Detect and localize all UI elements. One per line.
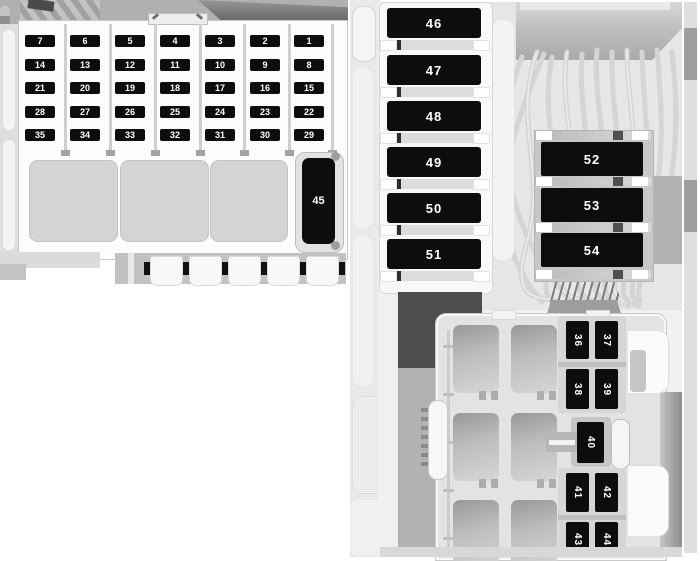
fuse-cell: 46: [387, 8, 481, 38]
clip-tab: [380, 87, 397, 98]
relay-pin: [537, 391, 544, 400]
fuse-number: 37: [601, 333, 612, 346]
fuse-cell: 31: [205, 129, 235, 141]
strip-slot: [353, 236, 373, 386]
rail-tab: [196, 150, 205, 156]
relay-pin: [549, 479, 556, 488]
fuse-cell: 27: [70, 106, 100, 118]
relay-slot: [210, 160, 288, 242]
fuse-cell: 52: [541, 142, 643, 176]
fuse-rail: [154, 24, 157, 152]
connector-pin: [421, 417, 428, 421]
rail-tab: [285, 150, 294, 156]
clip-tab: [473, 133, 490, 144]
clip-tab: [536, 131, 552, 140]
fuse-cell: 21: [25, 82, 55, 94]
fuse-cell: 23: [250, 106, 280, 118]
rail-tab: [240, 150, 249, 156]
fuse-cell: 7: [25, 35, 55, 47]
side-connector: [428, 400, 448, 480]
fuse-clip-row: [387, 225, 483, 235]
connector-socket: [228, 256, 261, 286]
fuse-clip-row: [387, 271, 483, 281]
fuse-cell: 38: [566, 369, 589, 409]
fuse-cell: 48: [387, 101, 481, 131]
side-strip-slot: [3, 140, 15, 250]
connector-socket: [306, 256, 339, 286]
fuse-cell: 50: [387, 193, 481, 223]
clip-tab: [632, 270, 648, 279]
edge-tab: [684, 180, 697, 232]
fuse-cell: 3: [205, 35, 235, 47]
relay-pin: [549, 391, 556, 400]
clip-tab: [632, 223, 648, 232]
fuse-cell: 53: [541, 188, 643, 222]
clip-tab: [536, 177, 552, 186]
bottom-strip: [380, 547, 682, 557]
fuse-cell: 5: [115, 35, 145, 47]
fuse-cell: 47: [387, 55, 481, 85]
fuse-clip-row: [387, 87, 483, 97]
relay-pin: [479, 391, 486, 400]
fuse-cell: 40: [577, 422, 604, 463]
fuse-cell: 12: [115, 59, 145, 71]
fuse-clip-row: [387, 179, 483, 189]
clip-tab: [380, 225, 397, 236]
fuse-cell: 33: [115, 129, 145, 141]
fuse-cell: 8: [294, 59, 324, 71]
connector-pin: [421, 453, 428, 457]
fuse-cell: 41: [566, 473, 589, 512]
fuse-number: 40: [585, 436, 596, 449]
fuse-cell: 11: [160, 59, 190, 71]
protrusion-notch: [630, 350, 646, 392]
fuse-40-bracket: [611, 419, 630, 469]
fuse-cell: 28: [25, 106, 55, 118]
fuse-number: 36: [572, 333, 583, 346]
fuse-cell: 13: [70, 59, 100, 71]
side-strip-slot: [3, 30, 15, 130]
right-edge-rail: [684, 2, 697, 553]
clip-tab: [632, 131, 648, 140]
fuse-number: 39: [601, 382, 612, 395]
fuse-number: 42: [601, 486, 612, 499]
fuse-cell: 9: [250, 59, 280, 71]
fuse-cell: 36: [566, 321, 589, 359]
fuse-number: 38: [572, 382, 583, 395]
fuse-cell: 16: [250, 82, 280, 94]
holder-separator: [558, 362, 626, 367]
fuse-cell: 22: [294, 106, 324, 118]
fuse-cell: 26: [115, 106, 145, 118]
fuse-cell: 1: [294, 35, 324, 47]
wire-fan: [548, 282, 622, 302]
clip-tab: [473, 40, 490, 51]
panel-rib: [492, 20, 514, 260]
rail-tick: [443, 489, 454, 492]
clip-tab: [380, 271, 397, 282]
connector-pin: [421, 408, 428, 412]
relay-slot: [120, 160, 209, 242]
relay-slot: [453, 413, 499, 481]
rail-tab: [151, 150, 160, 156]
clip-tab: [473, 225, 490, 236]
strip-divider: [128, 253, 134, 284]
clip-tab: [536, 270, 552, 279]
fuse-cell: 6: [70, 35, 100, 47]
fuse-cell: 14: [25, 59, 55, 71]
fuse-rail: [288, 24, 291, 152]
fuse-cell: 20: [70, 82, 100, 94]
fuse-cell: 29: [294, 129, 324, 141]
fuse-cell: 2: [250, 35, 280, 47]
fuse-cell: 15: [294, 82, 324, 94]
fuse-cell: 4: [160, 35, 190, 47]
fuse-clip-row: [387, 133, 483, 143]
connector-top-bar: [520, 2, 670, 10]
clip-tab: [473, 87, 490, 98]
rail-tick: [443, 393, 454, 396]
fuse-number: 44: [601, 532, 612, 545]
strip-slot: [353, 68, 373, 228]
block-notch: [492, 310, 516, 320]
fuse-rail: [64, 24, 67, 152]
fuse-cell: 45: [302, 158, 335, 244]
fuse-cell: 39: [595, 369, 618, 409]
rail-tab: [106, 150, 115, 156]
clip-tab: [380, 179, 397, 190]
edge-tab: [684, 28, 697, 80]
holder-separator: [558, 515, 626, 520]
relay-pin: [491, 391, 498, 400]
fuse-cell: 54: [541, 233, 643, 267]
fuse-cell: 30: [250, 129, 280, 141]
stem-slot: [549, 440, 575, 445]
clip-tab: [632, 177, 648, 186]
fuse-cell: 42: [595, 473, 618, 512]
connector-pin: [421, 444, 428, 448]
block-protrusion: [627, 465, 669, 537]
relay-slot: [29, 160, 118, 242]
connector-pin: [421, 426, 428, 430]
fuse-cell: 17: [205, 82, 235, 94]
fuse-clip-row: [387, 40, 483, 50]
fuse-cell: 37: [595, 321, 618, 359]
fuse-number: 43: [572, 532, 583, 545]
fuse-cell: 51: [387, 239, 481, 269]
connector-socket: [267, 256, 300, 286]
rail-tab: [61, 150, 70, 156]
relay-pin: [491, 479, 498, 488]
relay-slot: [511, 325, 557, 393]
connector-pin: [421, 435, 428, 439]
fuse-cell: 32: [160, 129, 190, 141]
fuse-number: 41: [572, 486, 583, 499]
fuse-rail: [199, 24, 202, 152]
fuse-cell: 24: [205, 106, 235, 118]
fuse-cell: 35: [25, 129, 55, 141]
fuse-cell: 49: [387, 147, 481, 177]
clip-tab: [473, 271, 490, 282]
clip-tab: [380, 40, 397, 51]
strip-slot: [352, 6, 376, 62]
connector-socket: [189, 256, 222, 286]
relay-pin: [479, 479, 486, 488]
clip-tab: [536, 223, 552, 232]
fuse-cell: 18: [160, 82, 190, 94]
relay-pin: [537, 479, 544, 488]
fuse-box-diagram: 7 6 5 4 3 2 1 14 13 12 11 10 9 8 21 20 1…: [0, 0, 700, 561]
connector-pin: [421, 462, 428, 466]
fuse-rail: [331, 24, 334, 152]
bottom-ledge-block: [0, 264, 26, 280]
bracket-shadow-plate: [650, 176, 682, 264]
connector-socket: [150, 256, 183, 286]
fuse-rail: [243, 24, 246, 152]
clip-tab: [380, 133, 397, 144]
fuse-cell: 10: [205, 59, 235, 71]
fuse-rail: [109, 24, 112, 152]
fuse-cell: 25: [160, 106, 190, 118]
fuse-cell: 19: [115, 82, 145, 94]
relay-slot: [453, 325, 499, 393]
clip-tab: [473, 179, 490, 190]
fuse-cell: 34: [70, 129, 100, 141]
